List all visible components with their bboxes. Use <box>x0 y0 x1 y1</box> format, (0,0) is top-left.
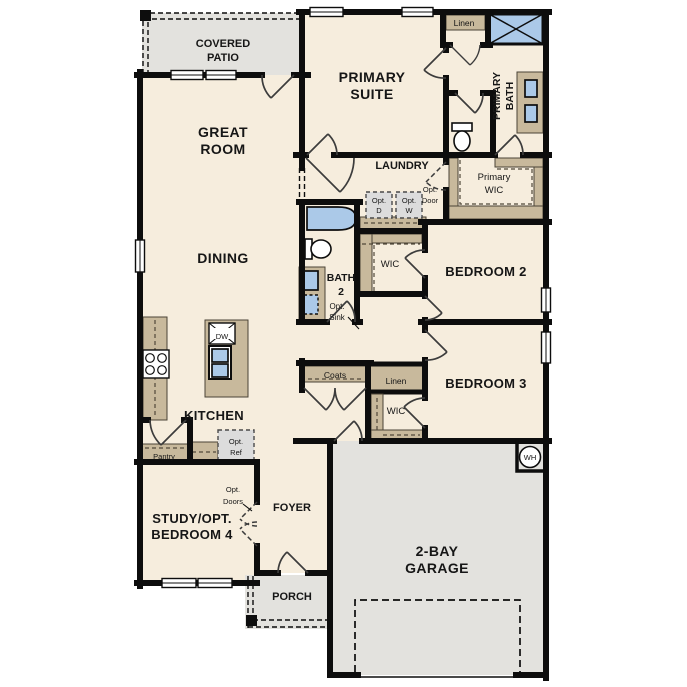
foyer-label: FOYER <box>273 502 311 514</box>
bathtub-icon <box>307 207 356 230</box>
wic2-shelf-left <box>360 234 372 294</box>
opt-doors-label: Doors <box>223 497 243 506</box>
great-room-label: GREAT <box>198 124 248 140</box>
coats-label: Coats <box>324 370 346 380</box>
opt-ref-label: Opt. <box>229 437 243 446</box>
opt-washer-label: W <box>405 206 413 215</box>
primary-sink-2 <box>525 105 537 122</box>
dishwasher-label: DW <box>216 332 229 341</box>
wic3-label: WIC <box>387 406 406 417</box>
bath2-opt-sink <box>304 295 318 314</box>
porch-post <box>246 615 257 626</box>
primary-wic-shelf-bottom <box>449 206 543 219</box>
laundry-label: LAUNDRY <box>375 160 429 172</box>
covered-patio-label: PATIO <box>207 52 239 64</box>
primary-bath-label: BATH <box>504 82 516 110</box>
great-room-label: ROOM <box>200 141 245 157</box>
pantry-label: Pantry <box>153 452 175 461</box>
primary-bath-label: PRIMARY <box>491 72 503 120</box>
water-heater-label: WH <box>524 453 537 462</box>
bedroom2-label: BEDROOM 2 <box>445 264 526 279</box>
bedroom3-label: BEDROOM 3 <box>445 376 526 391</box>
covered-patio-label: COVERED <box>196 38 250 50</box>
bath2-toilet-bowl <box>311 240 331 258</box>
opt-ref-box <box>218 430 254 462</box>
linen-top-label: Linen <box>454 18 475 28</box>
primary-wic-label: WIC <box>485 185 504 196</box>
opt-doors-label: Opt. <box>226 485 240 494</box>
opt-door-label: Door <box>422 196 439 205</box>
porch-label: PORCH <box>272 591 312 603</box>
bath2-label: 2 <box>338 286 344 298</box>
study-label: STUDY/OPT. <box>152 511 232 526</box>
garage-label: 2-BAY <box>416 543 459 559</box>
floor-areas <box>140 12 546 675</box>
bath2-sink <box>304 271 318 290</box>
primary-suite-label: SUITE <box>350 86 393 102</box>
patio-post <box>140 10 151 21</box>
kitchen-label: KITCHEN <box>184 408 244 423</box>
primary-toilet-tank <box>452 123 472 131</box>
opt-sink-label: Sink <box>329 313 346 322</box>
island-sink-basin-2 <box>212 364 228 377</box>
island-sink-basin-1 <box>212 349 228 362</box>
garage-label: GARAGE <box>405 560 469 576</box>
floor-plan-canvas: COVERED PATIO GREAT ROOM PRIMARY SUITE D… <box>0 0 687 687</box>
opt-dryer-label: Opt. <box>372 196 386 205</box>
primary-wic-shelf-top <box>495 158 543 167</box>
linen-hall-label: Linen <box>386 376 407 386</box>
primary-wic-label: Primary <box>478 172 511 183</box>
dining-label: DINING <box>197 250 248 266</box>
primary-sink-1 <box>525 80 537 97</box>
bath2-label: BATH <box>327 272 355 284</box>
study-label: BEDROOM 4 <box>151 527 233 542</box>
primary-suite-label: PRIMARY <box>339 69 406 85</box>
primary-toilet-bowl <box>454 131 470 151</box>
opt-dryer-label: D <box>376 206 382 215</box>
opt-sink-label: Opt. <box>329 302 344 311</box>
floor-plan: COVERED PATIO GREAT ROOM PRIMARY SUITE D… <box>0 0 687 687</box>
opt-washer-label: Opt. <box>402 196 416 205</box>
opt-door-label: Opt. <box>423 185 437 194</box>
stove-icon <box>143 350 169 378</box>
wic2-label: WIC <box>381 259 400 270</box>
opt-ref-label: Ref <box>230 448 243 457</box>
